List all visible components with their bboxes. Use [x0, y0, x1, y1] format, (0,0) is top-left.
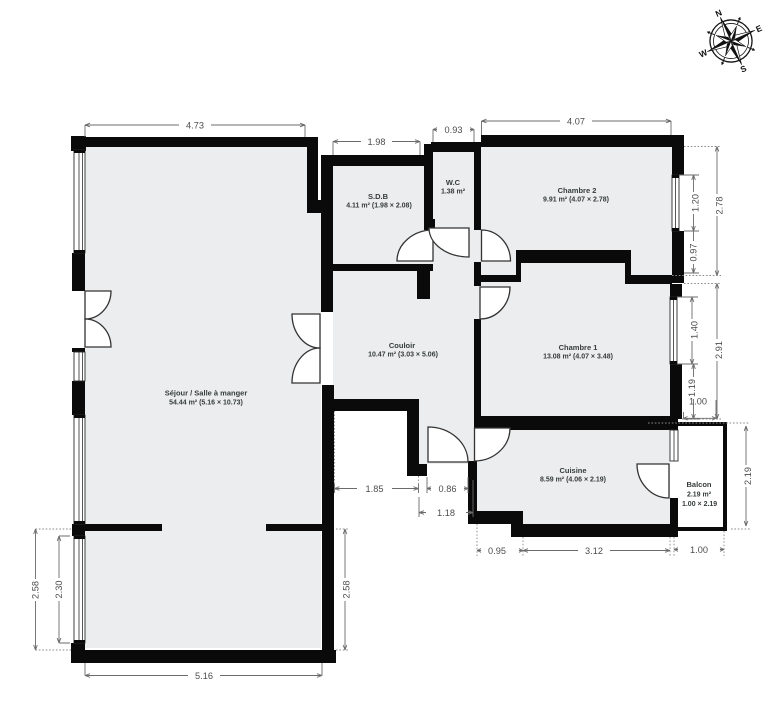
svg-text:1.20: 1.20: [690, 194, 700, 212]
svg-text:1.38 m²: 1.38 m²: [441, 189, 466, 196]
svg-text:Chambre 2: Chambre 2: [558, 186, 597, 195]
svg-text:2.91: 2.91: [714, 341, 724, 359]
svg-text:W.C: W.C: [446, 178, 461, 187]
svg-text:1.00: 1.00: [690, 545, 708, 555]
svg-text:0.95: 0.95: [488, 546, 506, 556]
svg-text:Chambre 1: Chambre 1: [559, 343, 598, 352]
svg-text:0.86: 0.86: [439, 484, 457, 494]
svg-text:13.08 m² (4.07 × 3.48): 13.08 m² (4.07 × 3.48): [543, 354, 613, 361]
svg-text:4.11 m² (1.98 × 2.08): 4.11 m² (1.98 × 2.08): [346, 203, 412, 210]
svg-text:54.44 m² (5.16 × 10.73): 54.44 m² (5.16 × 10.73): [169, 400, 243, 407]
svg-text:9.91 m² (4.07 × 2.78): 9.91 m² (4.07 × 2.78): [543, 197, 609, 204]
svg-text:S.D.B: S.D.B: [368, 192, 389, 201]
svg-text:Cuisine: Cuisine: [559, 466, 586, 475]
svg-text:2.78: 2.78: [714, 197, 724, 215]
svg-text:1.18: 1.18: [437, 508, 455, 518]
svg-text:0.93: 0.93: [445, 125, 463, 135]
svg-text:0.97: 0.97: [688, 244, 698, 262]
svg-text:3.12: 3.12: [585, 546, 603, 556]
svg-text:4.07: 4.07: [567, 116, 585, 126]
svg-text:1.19: 1.19: [687, 379, 697, 397]
svg-text:Séjour / Salle à manger: Séjour / Salle à manger: [165, 389, 248, 398]
svg-text:1.00 × 2.19: 1.00 × 2.19: [682, 501, 717, 508]
svg-text:2.58: 2.58: [341, 581, 351, 599]
svg-text:2.58: 2.58: [30, 581, 40, 599]
svg-text:Balcon: Balcon: [686, 480, 711, 489]
svg-text:4.73: 4.73: [186, 120, 204, 130]
svg-text:1.00: 1.00: [689, 396, 707, 406]
svg-text:1.40: 1.40: [689, 321, 699, 339]
svg-text:5.16: 5.16: [195, 671, 213, 681]
svg-text:1.85: 1.85: [366, 484, 384, 494]
svg-text:2.19 m²: 2.19 m²: [687, 492, 712, 499]
svg-text:2.30: 2.30: [54, 581, 64, 599]
svg-text:8.59 m² (4.06 × 2.19): 8.59 m² (4.06 × 2.19): [540, 477, 606, 484]
svg-text:1.98: 1.98: [368, 137, 386, 147]
svg-text:10.47 m² (3.03 × 5.06): 10.47 m² (3.03 × 5.06): [368, 352, 438, 359]
svg-text:Couloir: Couloir: [389, 341, 415, 350]
svg-text:2.19: 2.19: [743, 467, 753, 485]
